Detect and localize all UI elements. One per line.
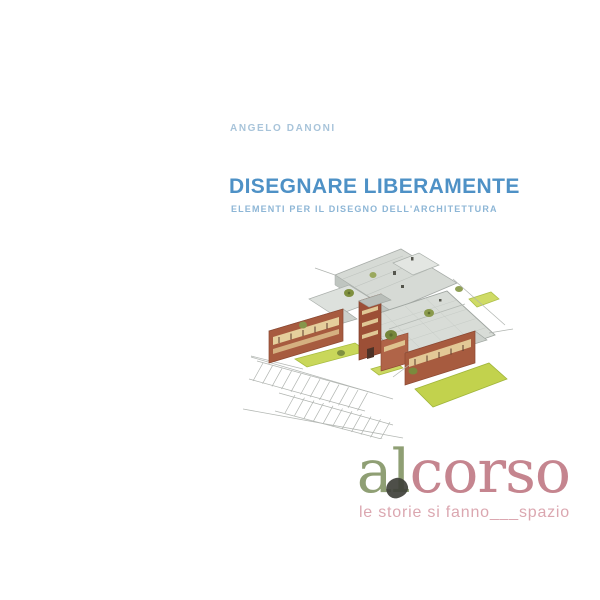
- book-cover: ANGELO DANONI DISEGNARE LIBERAMENTE ELEM…: [0, 0, 600, 600]
- author-name: ANGELO DANONI: [230, 123, 336, 134]
- publisher-logo-block: alcorso le storie si fanno___spazio: [357, 441, 570, 522]
- book-title: DISEGNARE LIBERAMENTE: [229, 175, 520, 199]
- publisher-logo: alcorso: [357, 441, 570, 503]
- book-subtitle: ELEMENTI PER IL DISEGNO DELL'ARCHITETTUR…: [231, 204, 498, 214]
- cover-illustration: [243, 241, 515, 439]
- parking-lot: [249, 361, 393, 439]
- publisher-logo-corso: corso: [410, 437, 570, 507]
